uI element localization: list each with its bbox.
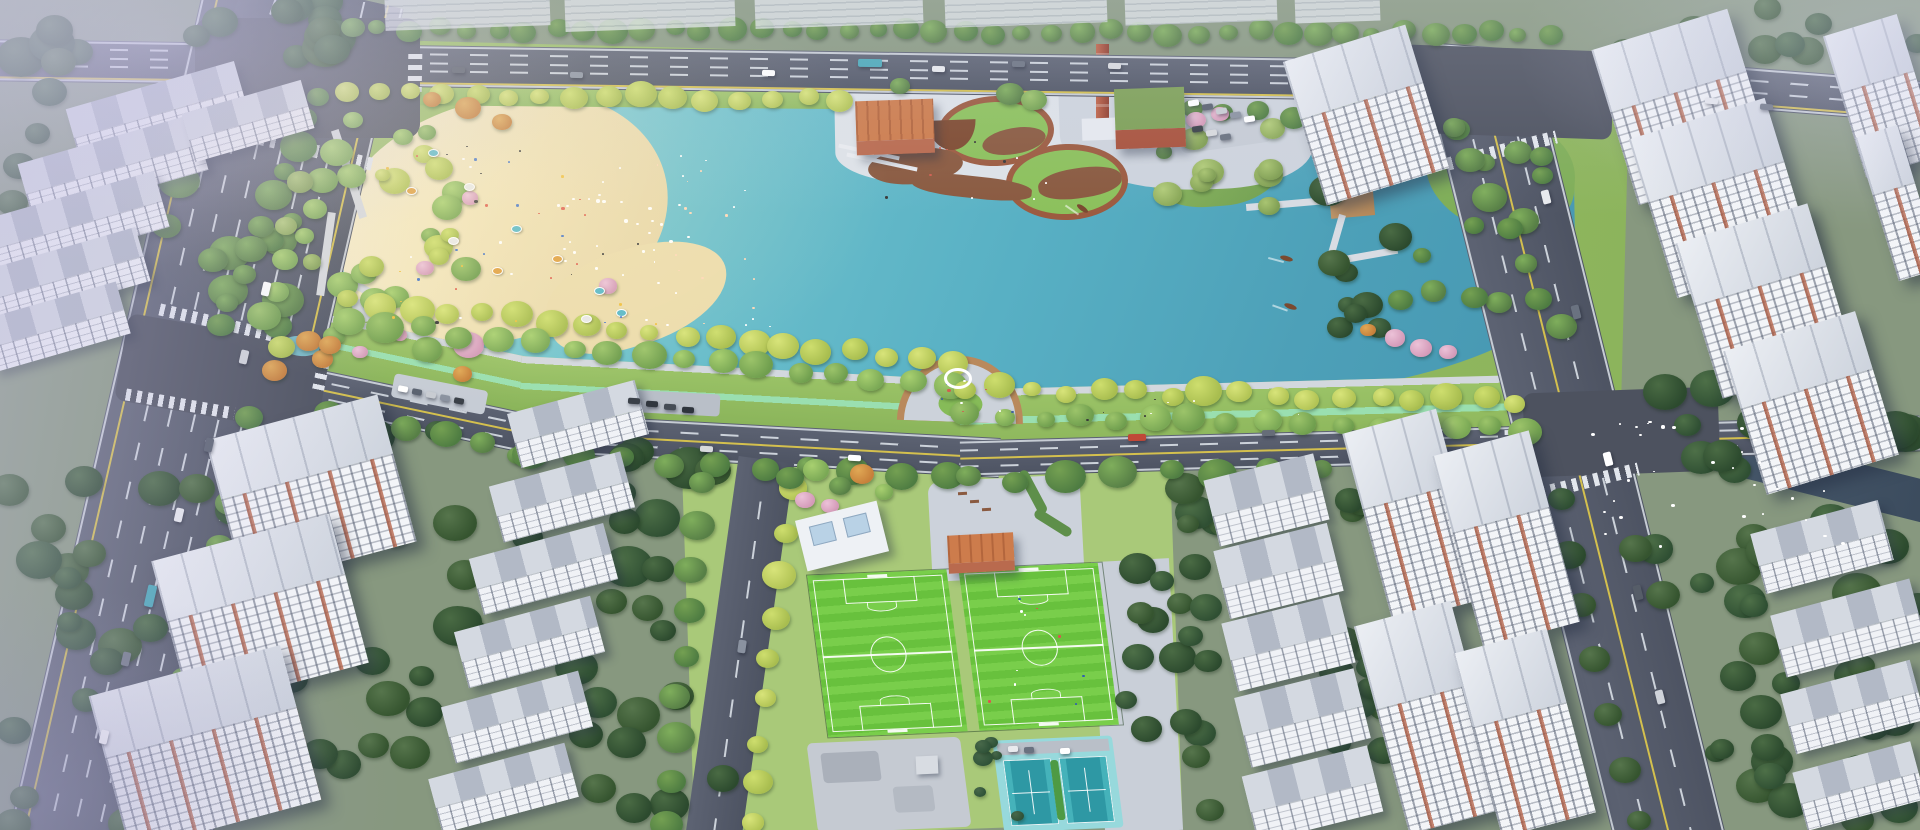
tree	[169, 799, 196, 821]
swimmers-dot	[689, 212, 692, 214]
complex-people-dot	[974, 141, 976, 143]
bird-flock-east-dot	[1741, 451, 1743, 453]
tree	[739, 351, 773, 379]
tree	[756, 649, 780, 668]
tree	[1410, 339, 1431, 357]
tree	[1674, 414, 1701, 436]
lake-steps-1	[838, 144, 899, 161]
bird-flock-lake-dot	[573, 251, 577, 254]
edge-line	[138, 332, 530, 416]
tree	[36, 15, 73, 46]
tree	[1214, 413, 1237, 431]
swimmers-dot	[733, 206, 735, 208]
plaza-people-dot	[1011, 411, 1013, 413]
south-promenade-c	[959, 374, 1561, 460]
tree	[689, 472, 714, 493]
tree	[471, 303, 493, 321]
bird-flock-east-dot	[1619, 423, 1621, 425]
roof	[1342, 409, 1456, 510]
bird-flock-lake-dot	[669, 240, 672, 243]
boat	[1076, 203, 1090, 215]
tree	[1710, 739, 1733, 758]
roof	[18, 114, 202, 194]
lane-line	[960, 424, 1920, 451]
beach-people-dot	[602, 253, 605, 255]
bird-flock-east-dot	[1671, 504, 1674, 507]
tree	[795, 492, 814, 508]
roof	[89, 645, 297, 758]
hazy-building	[755, 0, 924, 29]
tree	[530, 89, 549, 104]
plaza-people-dot	[963, 380, 965, 382]
roof	[1432, 430, 1549, 532]
tree	[875, 348, 898, 367]
roof	[1221, 594, 1348, 660]
tree	[1311, 460, 1333, 478]
tree	[674, 646, 700, 667]
tree	[875, 484, 894, 499]
beach-people-dot	[466, 146, 468, 148]
tree	[1705, 744, 1727, 762]
yellow-line	[185, 5, 389, 830]
tree	[1045, 460, 1086, 494]
roof	[489, 451, 628, 516]
facade	[1244, 706, 1371, 768]
tree	[1685, 36, 1716, 61]
vehicle	[737, 640, 747, 654]
tree	[1388, 290, 1413, 311]
complex-people-dot	[1033, 198, 1035, 200]
tree	[563, 549, 598, 577]
top-road-east	[1429, 42, 1920, 123]
red-path-3	[1036, 162, 1123, 203]
tower-building	[1591, 9, 1774, 205]
tree	[975, 740, 991, 753]
soccer-pitch	[958, 563, 1119, 731]
tree	[337, 290, 358, 308]
facade	[1212, 489, 1329, 547]
swimmers-dot	[666, 324, 669, 326]
tree	[1546, 314, 1576, 339]
tree	[1188, 26, 1210, 44]
tree	[1249, 19, 1274, 39]
tree	[216, 294, 238, 312]
vehicle	[1192, 125, 1204, 132]
tree	[470, 432, 496, 453]
haze-bottomleft	[0, 0, 1920, 830]
plaza-people-dot	[941, 398, 944, 400]
tree	[352, 346, 368, 359]
roof	[1855, 125, 1915, 195]
tree	[984, 737, 998, 748]
tree	[573, 314, 600, 336]
bird-flock-lake-dot	[596, 199, 600, 202]
tree	[954, 381, 976, 399]
tree	[659, 684, 690, 709]
tree	[1177, 515, 1199, 533]
tree	[592, 341, 622, 365]
facade	[477, 553, 618, 615]
tree	[1159, 642, 1196, 673]
tree	[512, 525, 543, 550]
slab-building	[469, 523, 618, 615]
tree	[296, 331, 321, 351]
aerial-masterplan-render	[0, 0, 1920, 830]
edge-line	[130, 367, 522, 451]
tree	[1501, 450, 1534, 477]
tree	[235, 236, 267, 262]
tree	[16, 541, 62, 579]
bird-flock-east-dot	[1613, 500, 1615, 502]
middle-road-east	[960, 415, 1920, 476]
tree	[650, 620, 675, 641]
south-promenade-a	[139, 277, 542, 414]
tree	[1736, 524, 1771, 553]
tree	[938, 351, 968, 376]
tree	[1070, 21, 1096, 42]
roof	[182, 80, 309, 140]
swimmers-dot	[701, 277, 704, 279]
facade	[1251, 781, 1384, 830]
tree	[1790, 37, 1824, 65]
roof	[469, 523, 611, 589]
court-net-line	[1068, 789, 1106, 792]
east-walk	[1091, 558, 1183, 830]
tree	[287, 171, 313, 192]
tree	[1754, 763, 1786, 789]
tree	[674, 557, 707, 584]
peninsula	[1145, 101, 1292, 211]
wall	[949, 560, 1015, 573]
tree	[359, 256, 385, 277]
hedge-arc-2	[1033, 508, 1074, 539]
facade	[1873, 182, 1920, 281]
tree	[821, 499, 839, 514]
tree	[1455, 148, 1485, 172]
beach-people-dot	[571, 274, 573, 275]
tree	[1338, 297, 1358, 313]
tree	[159, 699, 195, 729]
roadside-parking	[619, 389, 720, 416]
tree	[1530, 147, 1553, 166]
tree	[360, 288, 389, 312]
beach-people-dot	[435, 321, 438, 324]
bird-flock-east-dot	[1662, 425, 1665, 427]
slab-building	[1770, 578, 1920, 677]
tree	[1226, 381, 1252, 402]
tree	[453, 332, 484, 357]
field-players-dot	[1014, 683, 1017, 685]
court-apron	[1044, 759, 1058, 823]
swimmers-dot	[657, 282, 660, 284]
tree	[292, 108, 317, 129]
tree	[870, 22, 887, 36]
tree	[172, 668, 193, 685]
facade	[1453, 507, 1580, 648]
tree	[840, 23, 859, 39]
yellow-line	[21, 0, 225, 830]
swimmers-dot	[705, 160, 707, 162]
beach-people-dot	[508, 161, 510, 163]
beach-people-dot	[459, 317, 462, 319]
tree	[1122, 644, 1153, 670]
tree	[1479, 20, 1504, 41]
facade	[1610, 71, 1774, 205]
vehicle	[1060, 748, 1070, 754]
tree	[423, 92, 441, 107]
facade	[26, 144, 208, 220]
tree	[271, 0, 303, 24]
tree	[1827, 641, 1849, 659]
tree	[1504, 141, 1532, 164]
skylight	[809, 521, 837, 546]
court-hedge	[1050, 760, 1066, 820]
bird-flock-east-dot	[1762, 513, 1764, 515]
tree	[1356, 657, 1382, 678]
overlook-plaza	[897, 354, 1025, 424]
lane-line	[1431, 54, 1920, 95]
lane-line	[255, 0, 278, 52]
vehicle	[700, 446, 713, 453]
tree	[413, 145, 435, 163]
tree	[1690, 573, 1714, 593]
beach-south	[535, 224, 739, 367]
tree	[302, 739, 338, 768]
tree	[1841, 755, 1876, 783]
tree	[654, 454, 683, 478]
tree	[32, 78, 67, 106]
lane-line	[114, 0, 318, 830]
tree	[208, 275, 247, 307]
promenade-people-dot	[1193, 400, 1195, 402]
tree	[739, 330, 771, 356]
vehicle	[440, 394, 451, 402]
crosswalk	[408, 52, 423, 92]
plaza-people-dot	[962, 411, 964, 413]
tree	[1319, 658, 1354, 686]
boat	[1280, 254, 1294, 262]
tree	[900, 370, 927, 392]
facade	[0, 310, 131, 373]
complex-people-dot	[929, 174, 932, 176]
tree	[466, 698, 497, 724]
crosswalk	[1528, 463, 1640, 503]
tree	[762, 561, 796, 589]
south-promenade-b	[519, 356, 1001, 440]
swimmers-dot	[769, 326, 771, 328]
tree	[609, 443, 644, 472]
tower-building	[1432, 430, 1580, 647]
tree	[31, 514, 66, 543]
bird-flock-east-dot	[1604, 533, 1607, 535]
tree	[263, 314, 292, 338]
vehicle	[398, 385, 409, 393]
bird-flock-east-dot	[1823, 490, 1825, 492]
tree	[416, 261, 434, 276]
lane-line	[0, 56, 1530, 80]
tree	[1643, 374, 1687, 410]
tree	[393, 129, 413, 146]
roof	[1780, 660, 1918, 727]
swimmers-dot	[684, 207, 687, 209]
boat-wake	[1065, 205, 1079, 216]
lane-line	[960, 440, 1920, 467]
skylight	[843, 513, 871, 538]
edge-line	[7, 0, 211, 830]
beach-people-dot	[410, 256, 412, 258]
tree	[1740, 594, 1769, 617]
tree	[379, 168, 410, 193]
vehicle	[1024, 747, 1034, 753]
tree	[1834, 386, 1862, 409]
tree	[779, 476, 807, 499]
tree	[133, 614, 168, 642]
edge-line	[519, 449, 998, 477]
tree	[991, 751, 1002, 760]
tree	[312, 350, 334, 368]
tree	[1681, 441, 1721, 474]
swimmers-dot	[657, 164, 659, 165]
beach-people-dot	[620, 316, 622, 318]
tree	[767, 333, 799, 359]
vehicle	[848, 455, 861, 462]
tree	[1332, 388, 1356, 408]
vehicle	[454, 397, 465, 405]
tree	[1874, 613, 1903, 637]
bird-flock-lake-dot	[595, 267, 599, 270]
slab-building	[0, 171, 170, 275]
edge-line	[0, 40, 1530, 64]
vehicle	[426, 391, 437, 399]
tree	[3, 153, 34, 179]
roof	[0, 281, 124, 348]
slab-building	[507, 380, 649, 468]
bird-flock-east-dot	[1659, 545, 1663, 548]
tree	[247, 302, 280, 329]
tree	[282, 213, 302, 229]
penalty-box-bottom	[859, 703, 934, 731]
tree	[1258, 159, 1283, 180]
tree	[280, 131, 318, 162]
tree	[752, 458, 780, 481]
tree	[382, 286, 409, 308]
tree	[1720, 661, 1755, 690]
bird-flock-lake-dot	[620, 201, 623, 203]
tree	[931, 462, 964, 489]
garden-pond	[281, 334, 321, 357]
tree	[327, 272, 359, 298]
tree	[1198, 168, 1216, 183]
tower-building	[1283, 25, 1449, 206]
bird-flock-east-dot	[1653, 471, 1655, 473]
tree	[1119, 553, 1156, 584]
tree	[1472, 183, 1507, 212]
vehicle	[1262, 430, 1275, 436]
tree	[411, 316, 436, 336]
roof	[507, 380, 642, 443]
bird-flock-lake-dot	[660, 223, 663, 225]
facade	[515, 409, 649, 468]
tennis-court	[1003, 758, 1059, 826]
tree	[1579, 646, 1610, 672]
vehicle	[762, 70, 775, 76]
court-apron	[1100, 757, 1114, 821]
beach-people-dot	[446, 154, 448, 155]
tree	[1834, 661, 1867, 688]
beach-people-dot	[561, 235, 563, 237]
chimney-base	[1082, 117, 1125, 140]
bird-flock-east-dot	[1774, 468, 1777, 470]
tree	[1376, 117, 1397, 134]
tree	[1023, 382, 1041, 396]
tree	[375, 169, 390, 181]
penalty-arc-bottom	[879, 695, 910, 706]
tree	[1442, 416, 1471, 440]
intersection-ne	[1397, 44, 1615, 139]
tree	[262, 360, 287, 381]
tree	[1194, 650, 1222, 673]
tree	[499, 90, 519, 106]
boat-wake	[1272, 304, 1288, 311]
tree	[548, 19, 570, 37]
tree	[239, 687, 266, 709]
facade	[449, 701, 593, 764]
tree	[1304, 22, 1333, 46]
bird-flock-lake-dot	[598, 194, 601, 196]
pitch-center-circle	[868, 636, 909, 674]
boardwalk-a	[1246, 196, 1338, 211]
tree	[956, 466, 981, 487]
tree	[1162, 388, 1184, 406]
bird-flock-east-dot	[1841, 542, 1845, 545]
tree	[1367, 318, 1391, 338]
tree	[1567, 593, 1596, 617]
beach-people-dot	[455, 249, 458, 251]
tree	[355, 647, 390, 675]
tree	[178, 701, 204, 722]
tree	[1369, 418, 1394, 439]
tree	[1682, 37, 1712, 62]
plaza-pavement-west	[834, 81, 1136, 186]
roof	[947, 532, 1014, 564]
tree	[1153, 182, 1182, 206]
tree	[984, 372, 1015, 398]
roof	[1629, 98, 1784, 203]
tree	[442, 181, 469, 203]
tree	[908, 347, 936, 370]
swimmers-dot	[700, 170, 702, 172]
chimney	[1096, 44, 1109, 124]
bird-flock-east-dot	[1753, 484, 1756, 486]
tree	[1219, 25, 1238, 40]
tree	[1325, 733, 1351, 754]
complex-people-dot	[939, 147, 942, 149]
tower-building	[1823, 14, 1920, 178]
tree	[1340, 502, 1365, 522]
tree	[755, 689, 776, 706]
field-players-dot	[1016, 670, 1018, 672]
tree	[100, 725, 134, 753]
beach-people-dot	[455, 288, 458, 290]
tree	[603, 546, 653, 587]
tree	[1254, 409, 1282, 432]
bird-flock-lake-dot	[648, 232, 651, 234]
tree	[824, 363, 849, 383]
bird-flock-east-dot	[1791, 497, 1794, 500]
lane-line	[713, 460, 768, 830]
bird-flock-east-dot	[1805, 519, 1808, 521]
tree	[424, 235, 453, 259]
